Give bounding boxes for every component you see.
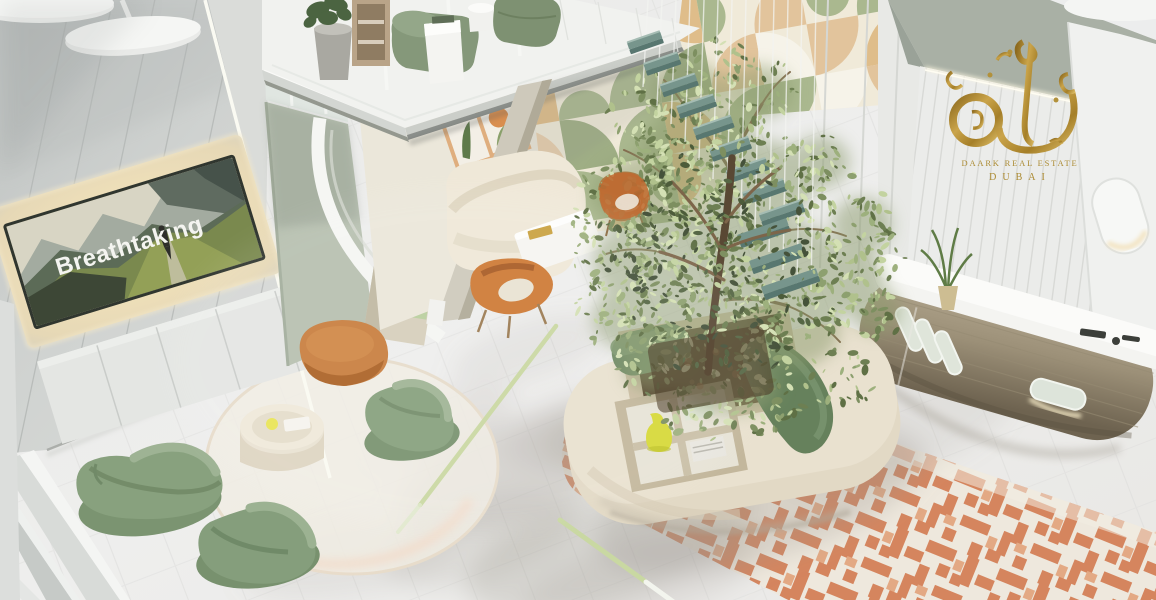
svg-text:DUBAI: DUBAI bbox=[989, 172, 1051, 183]
svg-text:DAARK REAL ESTATE: DAARK REAL ESTATE bbox=[962, 158, 1079, 168]
